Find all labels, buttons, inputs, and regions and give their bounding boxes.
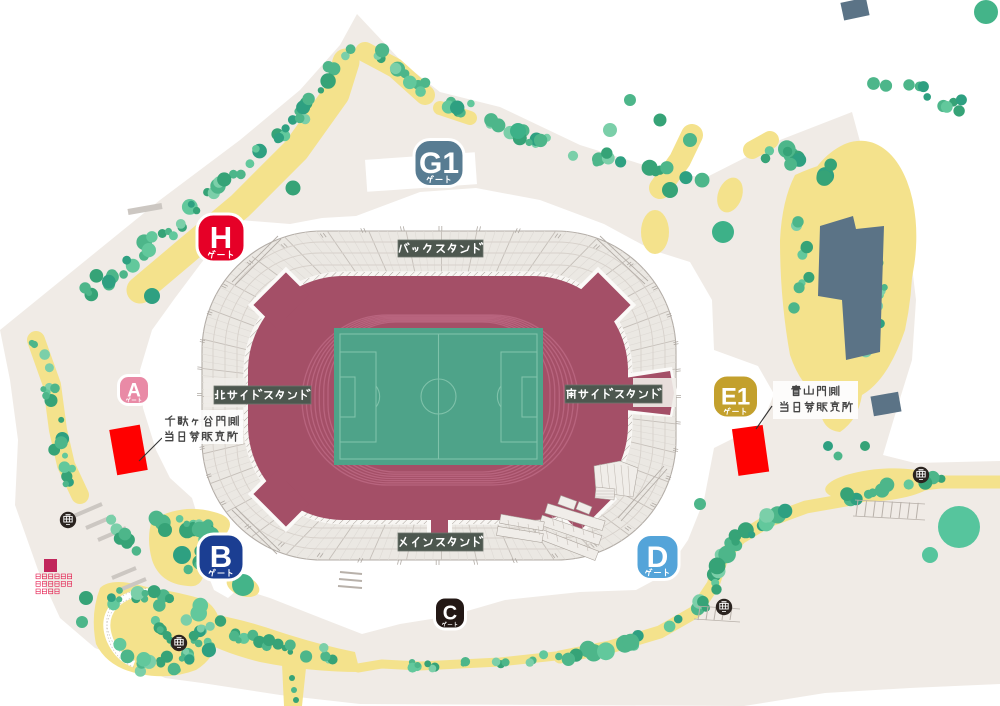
svg-text:C: C — [443, 603, 457, 625]
svg-text:H: H — [210, 220, 232, 255]
svg-text:G1: G1 — [419, 147, 459, 180]
svg-text:B: B — [210, 539, 232, 574]
svg-text:E1: E1 — [721, 384, 750, 411]
